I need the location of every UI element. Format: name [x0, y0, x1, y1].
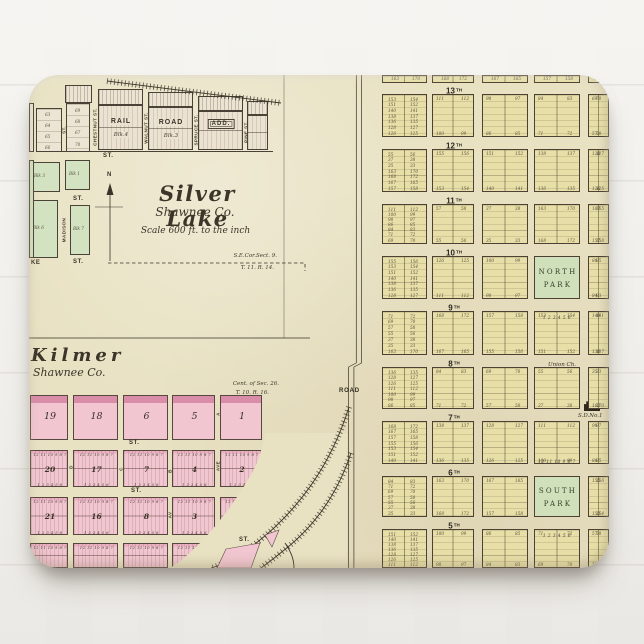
lot-number: 151 — [388, 270, 396, 275]
street-label: ST. — [239, 537, 249, 543]
lot-number: 72 — [461, 403, 466, 408]
lot-number: 152 — [410, 270, 418, 275]
lot-number: 154 — [596, 511, 604, 516]
lot-number: 112 — [410, 562, 418, 567]
lot-number: 140 — [388, 276, 396, 281]
lot-number: 57 — [486, 403, 491, 408]
lot-number: 112 — [410, 386, 418, 391]
lot-number: 153 — [388, 446, 396, 451]
lot-number: 154 — [461, 186, 469, 191]
street-label-12th: 12TH — [446, 134, 462, 153]
lot-number: 33 — [410, 343, 415, 348]
lot-number: 127 — [410, 375, 418, 380]
lot-number: 141 — [410, 276, 418, 281]
park-label: NORTH — [539, 268, 578, 276]
lot-number: 86 — [486, 131, 491, 136]
lot-number: 70 — [410, 238, 415, 243]
lot-number: 155 — [486, 349, 494, 354]
town-block: 168172167165 — [432, 311, 474, 355]
lot-number: 128 — [388, 375, 396, 380]
town-block: 157158155156 — [482, 311, 528, 355]
lot-number: 72 — [410, 314, 415, 319]
lot-number: 85 — [410, 403, 415, 408]
south-park-block: SOUTHPARK — [534, 476, 580, 517]
street-label-6th: 6TH — [448, 461, 459, 480]
lot-number: 99 — [461, 531, 466, 536]
lot-number: 153 — [388, 264, 396, 269]
lot-number: 138 — [388, 281, 396, 286]
town-block: 1511521401411381371361351281271261251111… — [382, 529, 427, 568]
lot-number: 136 — [388, 119, 396, 124]
lot-number: 136 — [538, 186, 546, 191]
lot-number: 127 — [515, 423, 523, 428]
lot-number: 172 — [461, 313, 469, 318]
town-block: 11111210099 — [432, 94, 474, 137]
railroad-line — [107, 81, 281, 103]
lot-number: 98 — [436, 562, 441, 567]
park-lot-sequence: 1 2 3 4 5 6 — [534, 533, 580, 538]
lot-number: 152 — [567, 349, 575, 354]
lot-number: 98 — [486, 293, 491, 298]
town-block: 11111210099 — [534, 421, 580, 464]
lot-number: 86 — [388, 403, 393, 408]
town-block: 84837172 — [534, 94, 580, 137]
lot-number: 111 — [538, 423, 546, 428]
lot-number: 168 — [436, 313, 444, 318]
lot-number: 127 — [596, 151, 604, 156]
lot-number: 151 — [486, 151, 494, 156]
street-label-8th: 8TH — [448, 352, 459, 371]
lot-number: 58 — [410, 495, 415, 500]
town-block: 69705758 — [482, 367, 528, 409]
lot-number: 152 — [410, 452, 418, 457]
town-block: 138137136135 — [534, 149, 580, 192]
lot-number: 170 — [461, 478, 469, 483]
lot-number: 165 — [410, 429, 418, 434]
lot-number: 100 — [436, 531, 444, 536]
lot-number: 167 — [486, 478, 494, 483]
lot-number: 33 — [410, 163, 415, 168]
lot-number: 71 — [436, 403, 441, 408]
lot-number: 128 — [388, 293, 396, 298]
lot-number: 99 — [410, 392, 415, 397]
lot-number: 167 — [388, 429, 396, 434]
lot-number: 168 — [538, 238, 546, 243]
lot-number: 33 — [410, 511, 415, 516]
lot-number: 71 — [538, 131, 543, 136]
lot-number: 70 — [596, 96, 601, 101]
lot-number: 156 — [594, 76, 602, 81]
lot-number: 83 — [596, 293, 601, 298]
lot-number: 165 — [513, 76, 521, 81]
lot-number: 38 — [410, 157, 415, 162]
lot-number: 168 — [388, 174, 396, 179]
lot-number: 85 — [515, 131, 520, 136]
lot-number: 83 — [410, 479, 415, 484]
street-label-7th: 7TH — [448, 406, 459, 425]
lot-number: 125 — [461, 258, 469, 263]
lot-number: 126 — [388, 381, 396, 386]
lot-number: 170 — [596, 403, 604, 408]
lot-number: 155 — [436, 151, 444, 156]
lot-number: 58 — [515, 403, 520, 408]
lot-number: 141 — [515, 186, 523, 191]
lot-number: 125 — [515, 458, 523, 463]
lot-number: 151 — [388, 102, 396, 107]
lot-number: 86 — [486, 531, 491, 536]
lot-number: 127 — [410, 125, 418, 130]
lot-number: 38 — [410, 337, 415, 342]
town-block: 1681721671651571581551561531541511521401… — [382, 421, 427, 464]
lot-number: 172 — [461, 511, 469, 516]
lot-number: 165 — [461, 349, 469, 354]
park-label: SOUTH — [539, 487, 577, 495]
lot-number: 37 — [388, 157, 393, 162]
town-block: 128127126125 — [588, 149, 609, 192]
lot-number: 57 — [436, 206, 441, 211]
lot-number: 58 — [461, 206, 466, 211]
lot-number: 97 — [410, 397, 415, 402]
lot-number: 163 — [391, 76, 399, 81]
town-block: 167165 — [482, 75, 528, 83]
town-block: 163170168172 — [432, 476, 474, 517]
lot-number: 38 — [410, 505, 415, 510]
town-block: 57585556 — [432, 204, 474, 244]
town-block: 98978685 — [588, 421, 609, 464]
lot-number: 172 — [567, 238, 575, 243]
lot-number: 56 — [410, 331, 415, 336]
lot-number: 157 — [388, 435, 396, 440]
lot-number: 72 — [410, 484, 415, 489]
lot-number: 100 — [486, 258, 494, 263]
lot-number: 112 — [461, 96, 469, 101]
lot-number: 156 — [461, 151, 469, 156]
lot-number: 157 — [486, 313, 494, 318]
lot-number: 137 — [410, 114, 418, 119]
lot-number: 156 — [410, 259, 418, 264]
lot-number: 151 — [538, 349, 546, 354]
lot-number: 83 — [567, 96, 572, 101]
lot-number: 111 — [388, 386, 396, 391]
school-district-label: S.D.No.1 — [578, 413, 603, 419]
town-block: 717269705758555637383533163170 — [382, 311, 427, 355]
lot-number: 69 — [486, 369, 491, 374]
lot-number: 112 — [461, 293, 469, 298]
lot-number: 140 — [486, 186, 494, 191]
town-block: 100999897 — [482, 256, 528, 299]
lot-number: 37 — [388, 337, 393, 342]
lot-number: 37 — [388, 505, 393, 510]
lot-number: 138 — [388, 114, 396, 119]
lot-number: 111 — [436, 96, 444, 101]
town-block: 86858483 — [482, 529, 528, 568]
north-park-block: NORTHPARK — [534, 256, 580, 299]
lot-number: 135 — [410, 370, 418, 375]
lot-number: 37 — [538, 403, 543, 408]
lot-number: 84 — [388, 479, 393, 484]
street-label-13th: 13TH — [446, 79, 462, 98]
lot-number: 155 — [388, 441, 396, 446]
town-grid: Union Ch. S.D.No.1 163170168172167165157… — [378, 75, 609, 568]
lot-number: 140 — [388, 458, 396, 463]
lot-number: 71 — [388, 314, 393, 319]
town-block: 140141138137 — [588, 311, 609, 355]
street-label-5th: 5TH — [448, 514, 459, 533]
lot-number: 158 — [596, 238, 604, 243]
lot-number: 33 — [515, 238, 520, 243]
street-label-10th: 10TH — [446, 241, 462, 260]
lot-number: 126 — [486, 458, 494, 463]
lot-number: 153 — [388, 97, 396, 102]
lot-number: 85 — [515, 531, 520, 536]
town-block: 8483717269705758555637383533 — [382, 476, 427, 517]
lot-number: 157 — [543, 76, 551, 81]
lot-number: 167 — [436, 349, 444, 354]
lot-number: 137 — [410, 281, 418, 286]
lot-number: 163 — [388, 349, 396, 354]
lot-number: 165 — [596, 206, 604, 211]
street-label-11th: 11TH — [446, 189, 461, 208]
lot-number: 69 — [388, 238, 393, 243]
town-block: 151152140141 — [482, 149, 528, 192]
town-block: 1111121009998978685848371726970 — [382, 204, 427, 244]
lot-number: 125 — [410, 131, 418, 136]
lot-number: 157 — [388, 186, 396, 191]
town-block: 86858483 — [588, 256, 609, 299]
town-block: 167165157158 — [588, 204, 609, 244]
lot-number: 70 — [410, 489, 415, 494]
town-block: 167165157158 — [482, 476, 528, 517]
lot-number: 57 — [388, 325, 393, 330]
lot-number: 165 — [515, 478, 523, 483]
lot-number: 84 — [436, 369, 441, 374]
lot-number: 111 — [436, 293, 444, 298]
lot-number: 71 — [388, 484, 393, 489]
town-block: 55563738 — [534, 367, 580, 409]
lot-number: 72 — [567, 131, 572, 136]
lot-number: 135 — [410, 119, 418, 124]
lot-number: 137 — [461, 423, 469, 428]
lot-number: 58 — [410, 325, 415, 330]
town-block: 100999897 — [432, 529, 474, 568]
lot-number: 70 — [515, 369, 520, 374]
lot-number: 69 — [388, 489, 393, 494]
lot-number: 58 — [596, 531, 601, 536]
town-block: 555637383533163170168172167165157158 — [382, 149, 427, 192]
town-block: 155156153154 — [432, 149, 474, 192]
lot-number: 170 — [410, 349, 418, 354]
lot-number: 84 — [486, 562, 491, 567]
lot-number: 58 — [596, 131, 601, 136]
lot-number: 97 — [461, 562, 466, 567]
lot-number: 56 — [410, 152, 415, 157]
lot-number: 33 — [596, 369, 601, 374]
lot-number: 158 — [410, 186, 418, 191]
town-block: 163170168172 — [534, 204, 580, 244]
lot-number: 97 — [515, 293, 520, 298]
town-block: 163170 — [382, 75, 427, 83]
lot-number: 163 — [538, 206, 546, 211]
town-block: 57585556 — [588, 529, 609, 568]
lot-number: 157 — [486, 511, 494, 516]
lot-number: 85 — [596, 458, 601, 463]
lot-number: 100 — [436, 131, 444, 136]
town-block: 69705758 — [588, 94, 609, 137]
lot-number: 69 — [388, 319, 393, 324]
town-block: 128127126125 — [482, 421, 528, 464]
lot-number: 37 — [486, 206, 491, 211]
lot-number: 163 — [436, 478, 444, 483]
lot-number: 84 — [538, 96, 543, 101]
lot-number: 56 — [596, 562, 601, 567]
lot-number: 70 — [410, 319, 415, 324]
lot-number: 154 — [410, 264, 418, 269]
town-block: 155156153154 — [588, 476, 609, 517]
lot-number: 170 — [567, 206, 575, 211]
lot-number: 168 — [388, 424, 396, 429]
lot-number: 156 — [515, 349, 523, 354]
lot-number: 136 — [388, 287, 396, 292]
lot-number: 55 — [388, 331, 393, 336]
lot-number: 69 — [538, 562, 543, 567]
lot-number: 127 — [410, 293, 418, 298]
lot-number: 153 — [436, 186, 444, 191]
lot-number: 152 — [515, 151, 523, 156]
town-block: 138137136135 — [432, 421, 474, 464]
lot-number: 38 — [515, 206, 520, 211]
lot-number: 85 — [596, 258, 601, 263]
lot-number: 35 — [388, 163, 393, 168]
lot-number: 167 — [491, 76, 499, 81]
north-arrow-head — [107, 183, 114, 195]
town-block: 155156 — [588, 75, 609, 83]
lot-number: 141 — [596, 313, 604, 318]
lot-number: 55 — [538, 369, 543, 374]
lot-number: 125 — [410, 381, 418, 386]
lot-number: 155 — [388, 259, 396, 264]
lot-number: 141 — [410, 108, 418, 113]
town-block: 37383533 — [482, 204, 528, 244]
lot-number: 83 — [461, 369, 466, 374]
lot-number: 170 — [410, 169, 418, 174]
lot-number: 135 — [410, 287, 418, 292]
lot-number: 158 — [515, 313, 523, 318]
town-block: 1531541511521401411381371361351281271261… — [382, 94, 427, 137]
lot-number: 98 — [486, 96, 491, 101]
lot-number: 172 — [410, 174, 418, 179]
lot-number: 154 — [410, 446, 418, 451]
lot-number: 125 — [596, 186, 604, 191]
lot-number: 100 — [388, 392, 396, 397]
lot-number: 35 — [388, 343, 393, 348]
lot-number: 83 — [515, 562, 520, 567]
park-lot-sequence: 1 2 3 4 5 6 — [534, 315, 580, 320]
town-block: 126125111112 — [432, 256, 474, 299]
lot-number: 156 — [410, 441, 418, 446]
lot-number: 55 — [388, 152, 393, 157]
lot-number: 156 — [596, 478, 604, 483]
lot-number: 140 — [388, 108, 396, 113]
town-block: 1551561531541511521401411381371361351281… — [382, 256, 427, 299]
road-bend — [349, 363, 362, 367]
park-lot-sequence: 12 11 10 9 8 7 — [534, 459, 580, 464]
lot-number: 97 — [515, 96, 520, 101]
lot-number: 70 — [567, 562, 572, 567]
lot-number: 151 — [388, 452, 396, 457]
town-block: 157158 — [534, 75, 580, 83]
lot-number: 112 — [567, 423, 575, 428]
lot-number: 38 — [567, 403, 572, 408]
lot-number: 137 — [596, 349, 604, 354]
lot-number: 57 — [388, 495, 393, 500]
lot-number: 35 — [388, 511, 393, 516]
lot-number: 126 — [388, 131, 396, 136]
lot-number: 137 — [567, 151, 575, 156]
park-label: PARK — [544, 500, 572, 508]
lot-number: 172 — [410, 424, 418, 429]
lot-number: 35 — [486, 238, 491, 243]
lot-number: 55 — [436, 238, 441, 243]
lot-number: 168 — [436, 511, 444, 516]
lot-number: 158 — [410, 435, 418, 440]
lot-number: 170 — [412, 76, 420, 81]
plat-boundary-dashed — [108, 263, 305, 271]
lot-number: 141 — [410, 458, 418, 463]
mousepad: RAIL Blk.4 ROAD Blk.3 ADD. CHESTNUT ST. … — [29, 75, 609, 568]
lot-number: 55 — [388, 500, 393, 505]
lot-number: 152 — [410, 102, 418, 107]
lot-number: 136 — [436, 458, 444, 463]
town-block: 98978685 — [482, 94, 528, 137]
lot-number: 97 — [596, 423, 601, 428]
lot-number: 167 — [388, 180, 396, 185]
lot-number: 158 — [565, 76, 573, 81]
lot-number: 98 — [388, 397, 393, 402]
lot-number: 56 — [410, 500, 415, 505]
lot-number: 154 — [410, 97, 418, 102]
lot-number: 138 — [538, 151, 546, 156]
park-label: PARK — [544, 281, 572, 289]
road-label: ROAD — [339, 388, 360, 394]
product-photo-scene: RAIL Blk.4 ROAD Blk.3 ADD. CHESTNUT ST. … — [0, 0, 644, 644]
lot-number: 128 — [388, 125, 396, 130]
lot-number: 56 — [567, 369, 572, 374]
lot-number: 99 — [515, 258, 520, 263]
lot-number: 111 — [388, 562, 396, 567]
lot-number: 135 — [461, 458, 469, 463]
town-block: 84837172 — [432, 367, 474, 409]
lot-number: 165 — [410, 180, 418, 185]
lot-number: 138 — [436, 423, 444, 428]
lot-number: 163 — [388, 169, 396, 174]
lot-number: 135 — [567, 186, 575, 191]
town-block: 1361351281271261251111121009998978685 — [382, 367, 427, 409]
street-label-9th: 9TH — [448, 296, 459, 315]
town-block: 3533163170 — [588, 367, 609, 409]
lot-number: 128 — [486, 423, 494, 428]
lot-number: 126 — [436, 258, 444, 263]
lot-number: 136 — [388, 370, 396, 375]
lot-number: 158 — [515, 511, 523, 516]
